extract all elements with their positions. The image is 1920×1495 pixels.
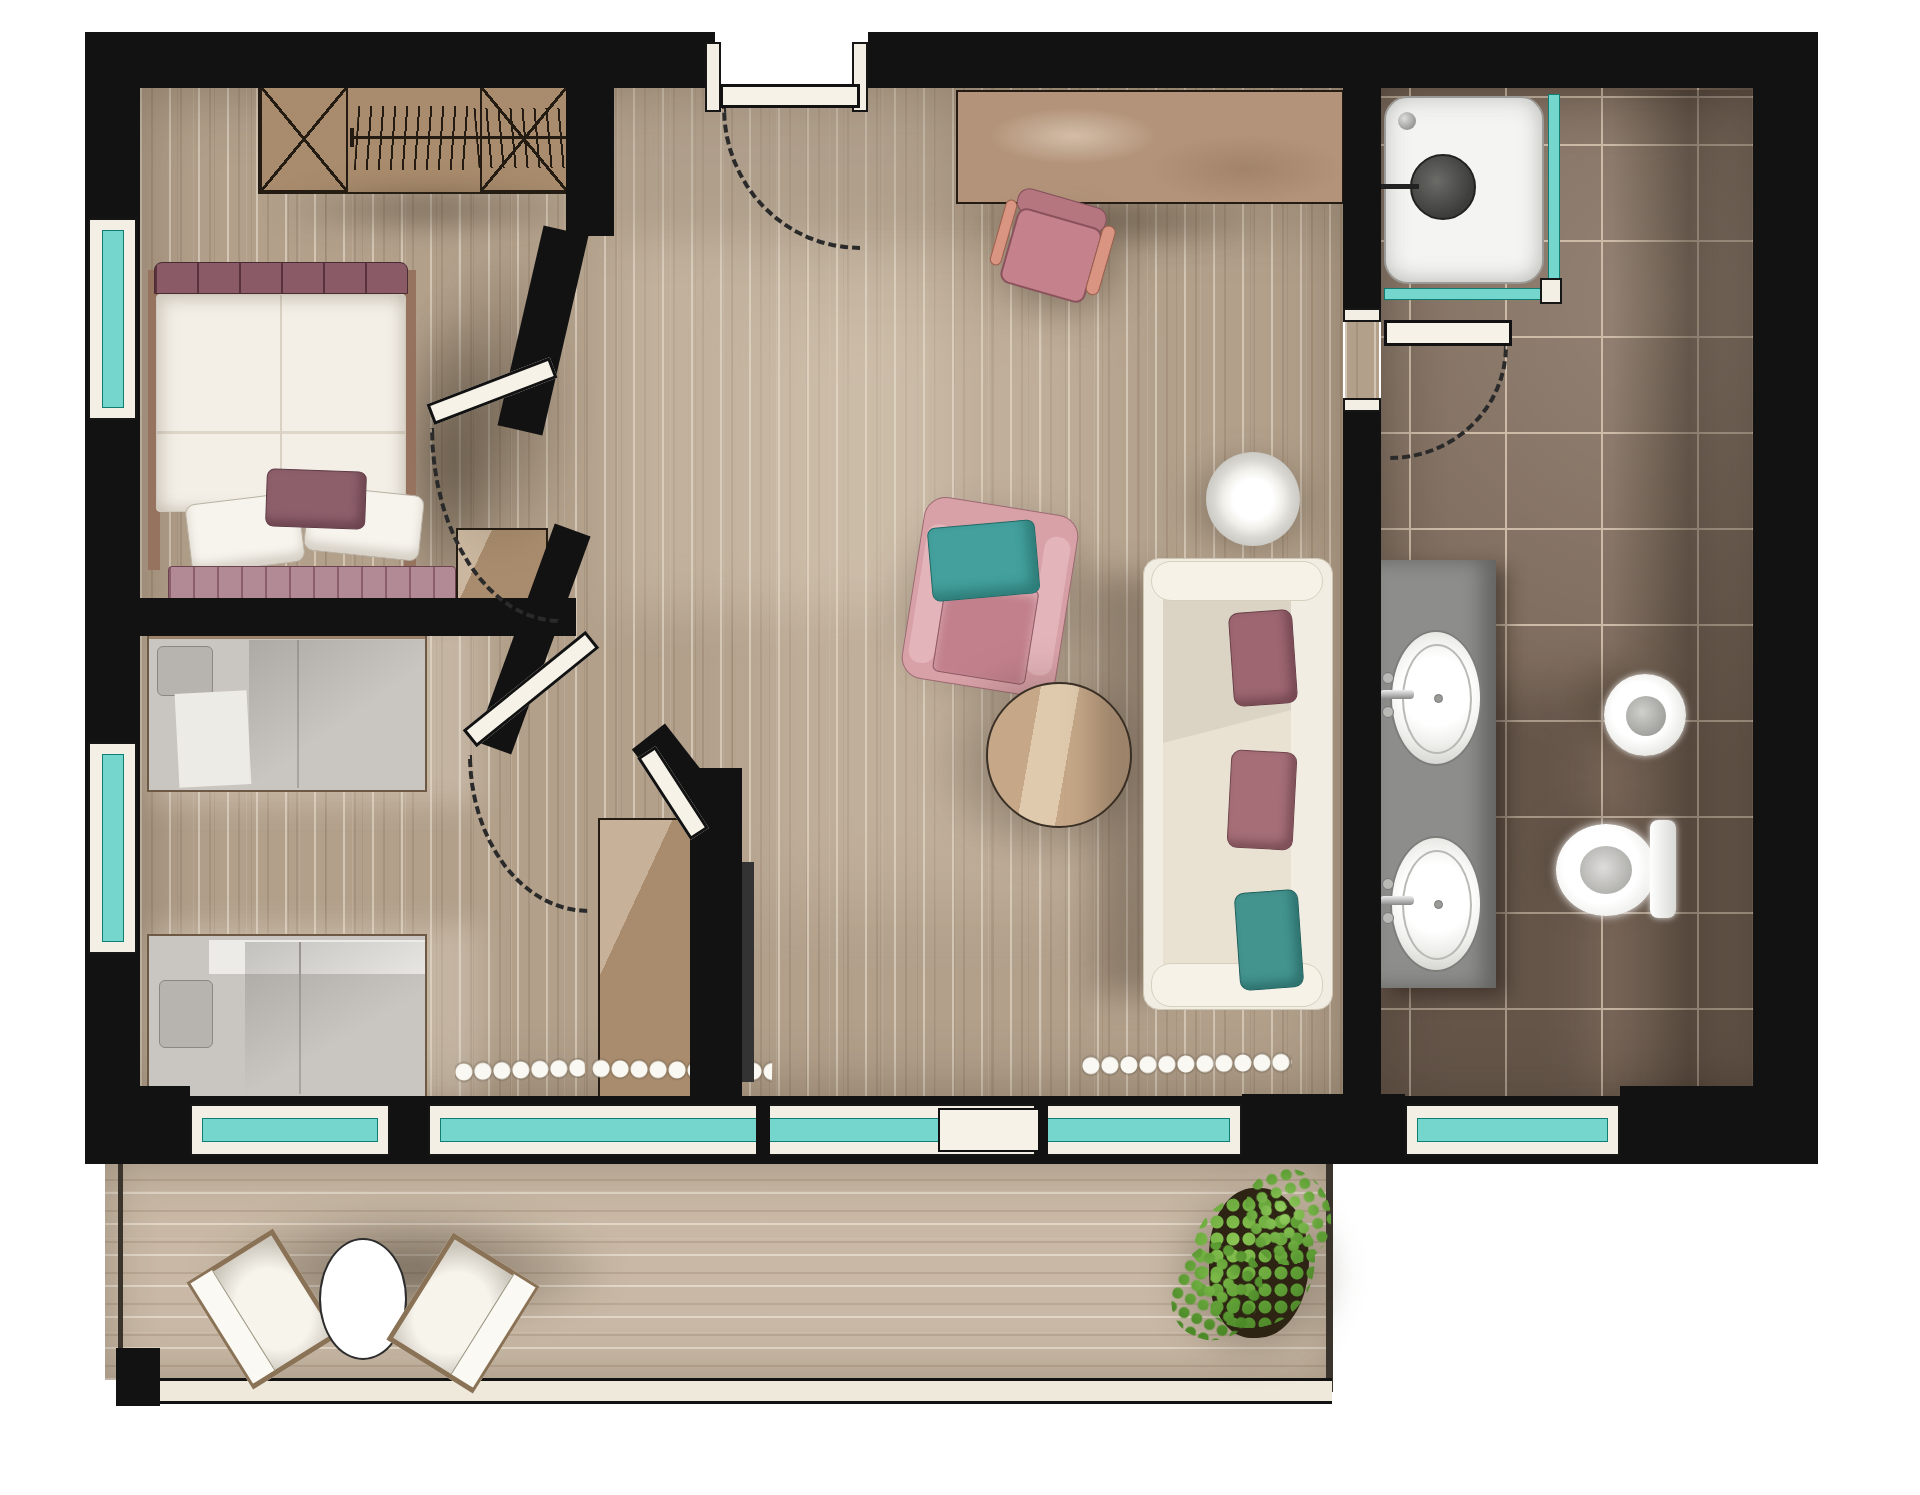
tv-panel bbox=[742, 862, 754, 1082]
window-glass bbox=[1417, 1118, 1608, 1142]
window-glass bbox=[440, 1118, 1230, 1142]
wardrobe-rail-end bbox=[350, 128, 354, 147]
bathroom-door bbox=[1384, 320, 1512, 346]
plum-sofa-cushion bbox=[1228, 609, 1298, 707]
door-threshold bbox=[1345, 322, 1379, 398]
floor-plan-canvas bbox=[0, 0, 1920, 1495]
balcony-post bbox=[116, 1348, 160, 1406]
bathroom-shade bbox=[1612, 90, 1752, 1094]
shower-glass-panel bbox=[1384, 288, 1556, 300]
wall-right bbox=[1753, 32, 1818, 1164]
drain-dot bbox=[1434, 900, 1443, 909]
gray-pillow bbox=[157, 646, 213, 696]
wall-bathroom-lower bbox=[1343, 412, 1381, 1102]
wall-bottom-corner-right bbox=[1620, 1086, 1818, 1164]
window-glass bbox=[102, 754, 124, 942]
side-table bbox=[1206, 452, 1300, 546]
wall-left bbox=[85, 32, 140, 1164]
gray-pillow bbox=[159, 980, 213, 1048]
shower-knob bbox=[1398, 112, 1416, 130]
window-glass bbox=[102, 230, 124, 408]
toilet-seat-inner bbox=[1580, 846, 1632, 894]
shower-arm bbox=[1381, 184, 1419, 189]
drain-dot bbox=[1434, 694, 1443, 703]
toilet-cistern bbox=[1650, 820, 1676, 918]
bed-headboard-tufted bbox=[154, 262, 408, 294]
shower-glass-panel bbox=[1548, 94, 1560, 294]
entrance-gap bbox=[715, 30, 868, 88]
wall-pier bbox=[1242, 1094, 1405, 1164]
wardrobe-rail bbox=[352, 136, 576, 139]
curtain-ruffle bbox=[1082, 1050, 1293, 1092]
window-glass bbox=[202, 1118, 378, 1142]
sliding-door-pane bbox=[938, 1108, 1040, 1152]
tap-handle bbox=[1382, 706, 1394, 718]
wall-bathroom-upper bbox=[1343, 88, 1381, 308]
white-sheet-fold bbox=[175, 690, 252, 788]
door-jamb bbox=[1343, 398, 1381, 412]
teal-cushion bbox=[927, 519, 1041, 602]
wall-master-right bbox=[566, 88, 614, 236]
tap-handle bbox=[1382, 912, 1394, 924]
plum-sofa-cushion bbox=[1226, 749, 1297, 850]
door-jamb bbox=[705, 42, 721, 112]
single-bed-upper bbox=[147, 628, 427, 792]
balcony-edge-left bbox=[118, 1164, 123, 1354]
teal-sofa-cushion bbox=[1234, 889, 1305, 991]
shower-glass-door-frame bbox=[1540, 278, 1562, 304]
shower-drain bbox=[1410, 154, 1476, 220]
balcony-railing bbox=[140, 1378, 1332, 1404]
duvet-shading bbox=[249, 640, 425, 790]
wardrobe-shadow bbox=[270, 186, 590, 232]
tap-chrome bbox=[1380, 690, 1414, 699]
window-mullion bbox=[756, 1104, 770, 1156]
entrance-door bbox=[720, 84, 860, 108]
single-bed-lower bbox=[147, 934, 427, 1098]
bidet-bowl bbox=[1626, 696, 1666, 736]
desk bbox=[956, 90, 1344, 204]
duvet-shading bbox=[245, 942, 425, 1096]
quilted-foot-runner bbox=[168, 566, 456, 602]
sofa bbox=[1143, 558, 1333, 1010]
wall-bottom-corner-left bbox=[85, 1086, 190, 1164]
wardrobe bbox=[258, 84, 570, 194]
tap-handle bbox=[1382, 878, 1394, 890]
curtain-ruffle bbox=[454, 1056, 585, 1095]
wardrobe-cabinet-left bbox=[260, 86, 348, 192]
tap-chrome bbox=[1380, 896, 1414, 905]
sofa-armrest bbox=[1151, 561, 1323, 601]
potted-plant bbox=[1175, 1168, 1340, 1363]
wall-top bbox=[85, 32, 1818, 88]
door-jamb bbox=[1343, 308, 1381, 322]
tap-handle bbox=[1382, 672, 1394, 684]
plum-accent-pillow bbox=[265, 468, 367, 529]
double-bed bbox=[148, 262, 416, 608]
